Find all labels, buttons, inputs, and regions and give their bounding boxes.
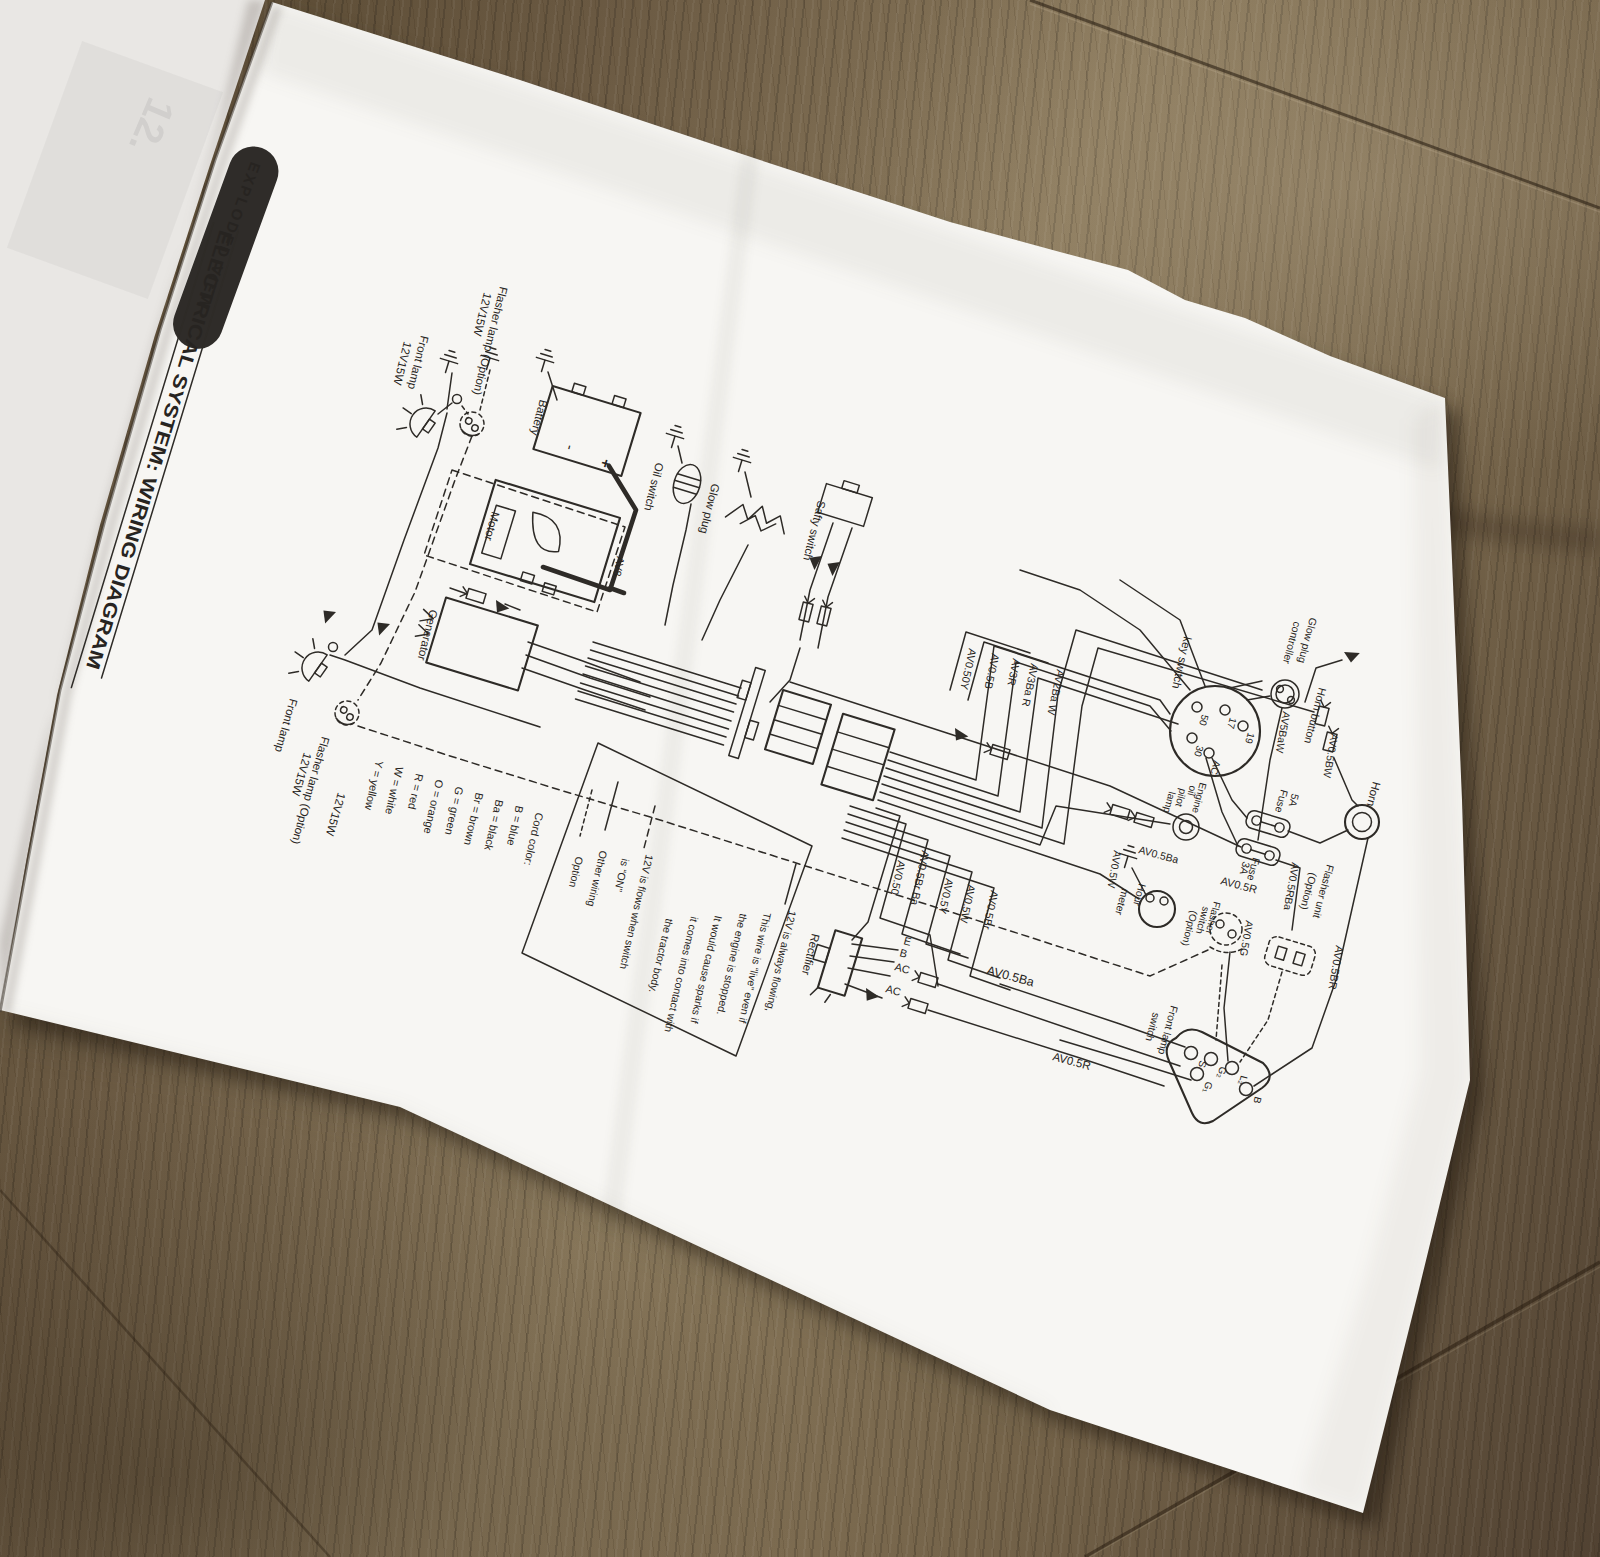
photo-of-wiring-diagram: 12.	[0, 0, 1600, 1557]
